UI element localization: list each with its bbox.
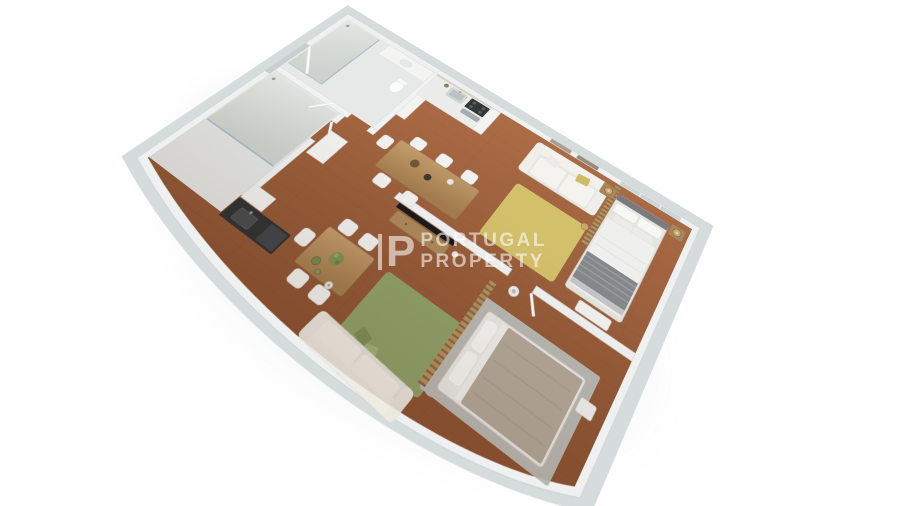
- apartment-3d-plan: [61, 14, 700, 506]
- floor-plan-render: P PORTUGAL PROPERTY: [0, 0, 900, 506]
